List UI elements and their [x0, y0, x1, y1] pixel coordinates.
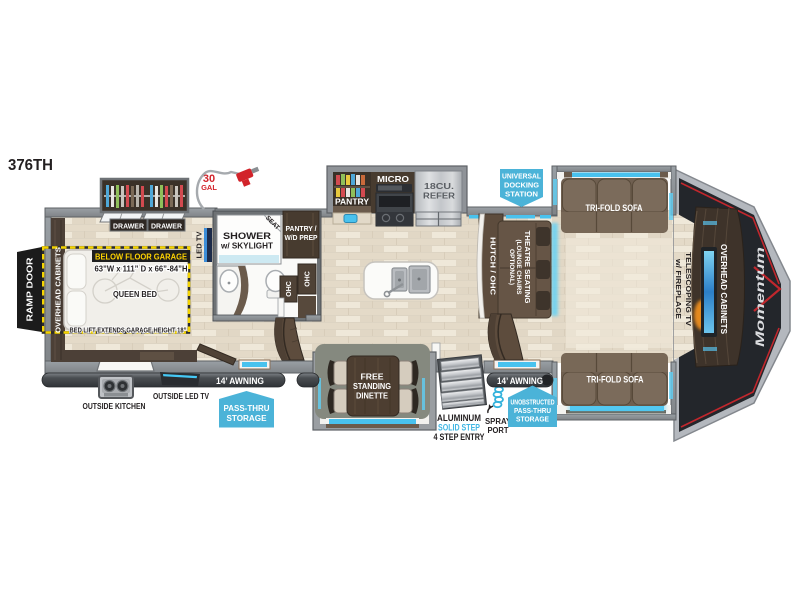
svg-text:OUTSIDE KITCHEN: OUTSIDE KITCHEN: [83, 401, 146, 411]
svg-text:QUEEN BED: QUEEN BED: [113, 289, 157, 299]
svg-text:OVERHEAD CABINETS: OVERHEAD CABINETS: [719, 244, 729, 334]
svg-text:TRI-FOLD SOFA: TRI-FOLD SOFA: [587, 375, 644, 386]
svg-text:OVERHEAD CABINETS: OVERHEAD CABINETS: [54, 247, 63, 333]
svg-text:OPTIONAL): OPTIONAL): [508, 249, 514, 285]
svg-text:W/D PREP: W/D PREP: [285, 235, 318, 242]
svg-text:REFER: REFER: [423, 191, 455, 201]
svg-text:SHOWER: SHOWER: [223, 231, 271, 242]
svg-text:(LOUNGE CHAIRS: (LOUNGE CHAIRS: [515, 240, 521, 295]
svg-text:376TH: 376TH: [8, 157, 53, 174]
svg-text:OHC: OHC: [305, 271, 312, 287]
svg-text:GAL: GAL: [201, 183, 217, 192]
svg-text:PANTRY: PANTRY: [335, 197, 369, 207]
svg-text:Momentum: Momentum: [755, 247, 767, 347]
svg-text:OUTSIDE LED TV: OUTSIDE LED TV: [153, 391, 209, 401]
svg-text:DRAWER: DRAWER: [151, 222, 183, 231]
svg-text:PANTRY /: PANTRY /: [286, 226, 317, 233]
svg-text:STORAGE: STORAGE: [227, 414, 268, 423]
svg-text:MICRO: MICRO: [377, 174, 409, 184]
svg-text:LED TV: LED TV: [197, 231, 204, 258]
svg-text:DOCKING: DOCKING: [504, 181, 539, 190]
svg-text:PORT: PORT: [488, 426, 509, 435]
svg-text:STATION: STATION: [505, 190, 538, 199]
svg-text:FREE: FREE: [361, 373, 385, 382]
svg-text:18CU.: 18CU.: [424, 181, 454, 191]
svg-text:HUTCH / OHC: HUTCH / OHC: [489, 237, 498, 296]
svg-text:PASS-THRU: PASS-THRU: [224, 404, 270, 413]
svg-text:4 STEP ENTRY: 4 STEP ENTRY: [434, 432, 485, 443]
svg-text:14’ AWNING: 14’ AWNING: [216, 376, 264, 387]
svg-text:THEATRE SEATING: THEATRE SEATING: [523, 231, 532, 304]
svg-text:63”W x 111” D x 66”-84”H: 63”W x 111” D x 66”-84”H: [95, 264, 188, 274]
svg-text:OHC: OHC: [286, 281, 293, 297]
svg-text:BED LIFT EXTENDS GARAGE HEIGHT: BED LIFT EXTENDS GARAGE HEIGHT 18”: [70, 326, 187, 335]
svg-text:RAMP DOOR: RAMP DOOR: [25, 258, 35, 322]
svg-text:TELESCOPING TV: TELESCOPING TV: [684, 252, 691, 326]
svg-text:UNIVERSAL: UNIVERSAL: [502, 172, 541, 181]
svg-text:DINETTE: DINETTE: [356, 392, 389, 401]
svg-text:TRI-FOLD SOFA: TRI-FOLD SOFA: [586, 203, 643, 214]
svg-text:STANDING: STANDING: [353, 382, 391, 391]
svg-text:w/ SKYLIGHT: w/ SKYLIGHT: [220, 242, 273, 251]
svg-text:DRAWER: DRAWER: [113, 222, 145, 231]
svg-text:BELOW FLOOR GARAGE: BELOW FLOOR GARAGE: [95, 252, 187, 262]
svg-text:SPRAY: SPRAY: [485, 417, 512, 426]
svg-text:14’ AWNING: 14’ AWNING: [497, 376, 543, 387]
svg-text:w/ FIREPLACE: w/ FIREPLACE: [674, 258, 681, 320]
svg-text:STORAGE: STORAGE: [516, 415, 549, 424]
